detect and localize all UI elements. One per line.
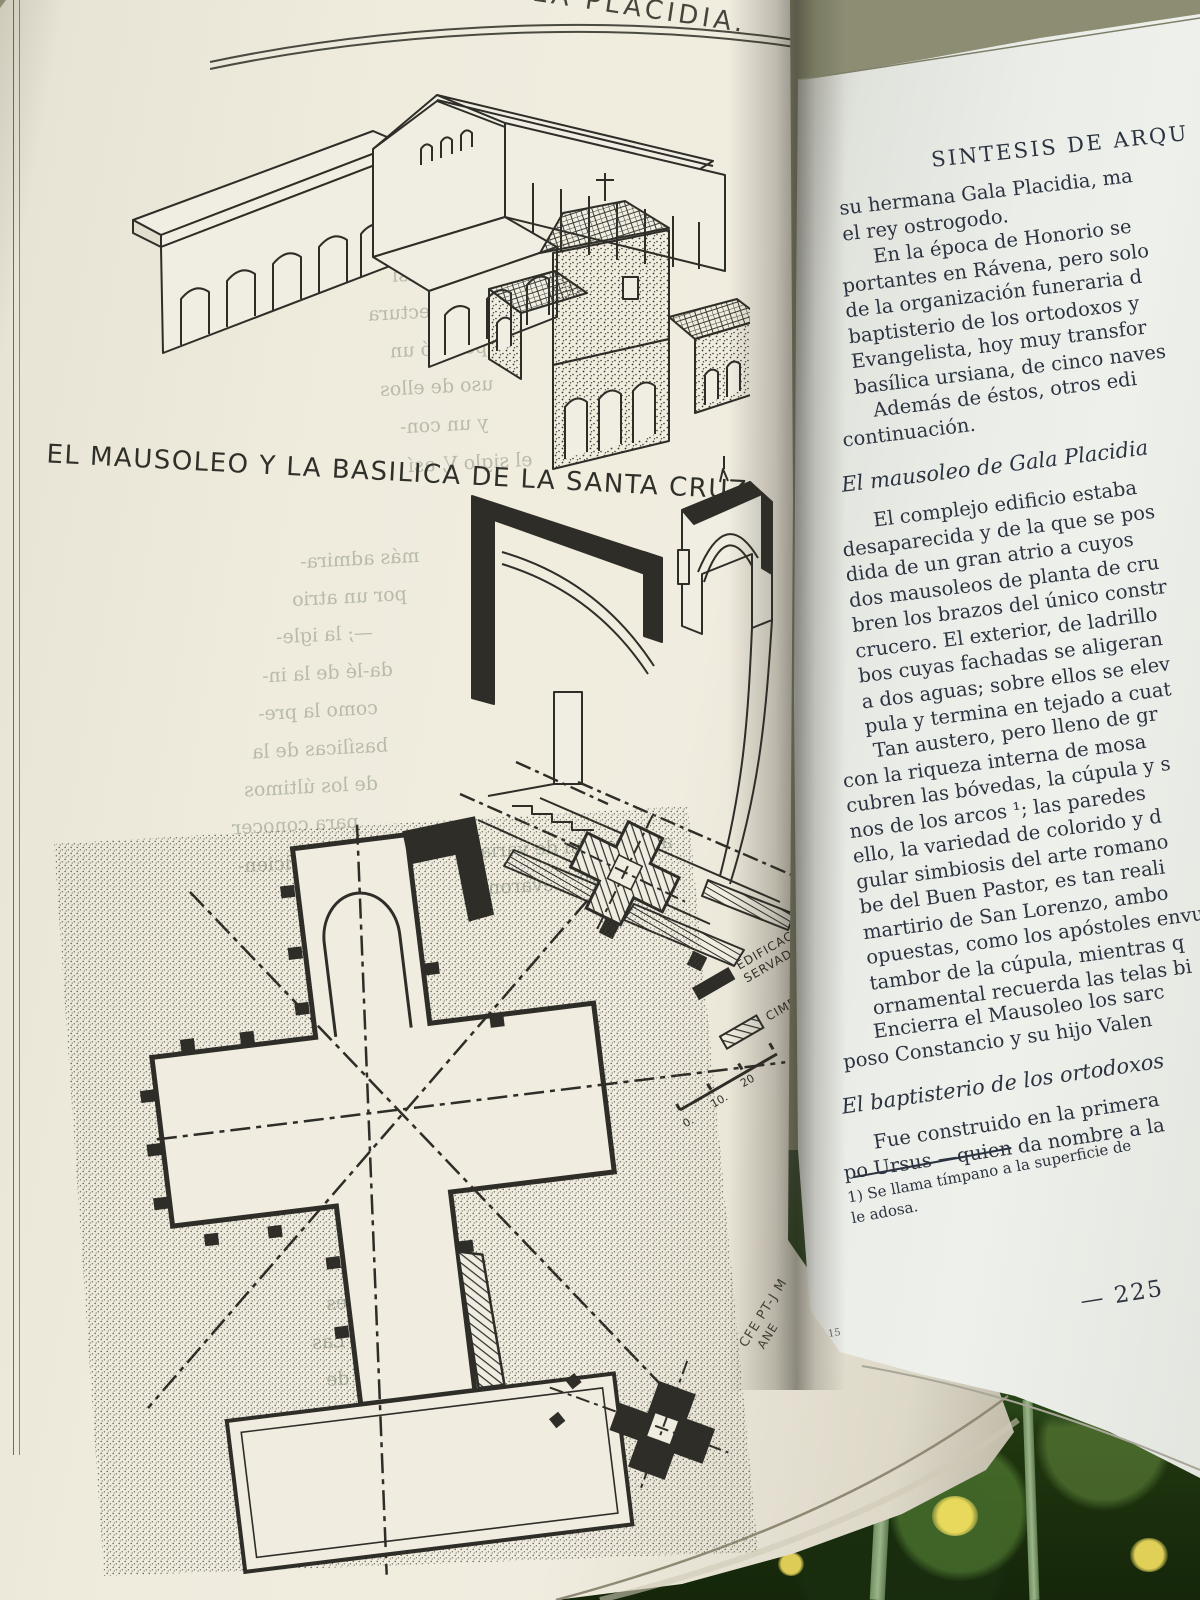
right-page: SINTESIS DE ARQUsu hermana Gala Placidia… [780,0,1200,1520]
showthrough-text: da-lé de la in- [262,659,394,688]
axonometric-drawing [85,55,750,485]
yellow-flower [1130,1538,1168,1572]
showthrough-text: como la pre- [258,697,379,725]
plan-note: CFE PT-J M ANE [737,1276,800,1358]
paragraph: El complejo edificio estabadesaparecida … [838,458,1200,740]
page-number: — 225 [1078,1276,1165,1315]
showthrough-text: basílicas de la [252,734,389,763]
right-page-text: SINTESIS DE ARQUsu hermana Gala Placidia… [838,148,1200,1187]
showthrough-text: —; la igle- [275,621,373,648]
page-frame-line [13,0,20,1455]
yellow-flower [932,1496,978,1536]
paragraph: Tan austero, pero lleno de grcon la riqu… [838,685,1200,1021]
showthrough-text: más admira- [300,545,421,573]
book-photo: { "palette": { "left_paper": "#eee9dc", … [0,0,1200,1600]
floor-plan-drawing: EDIFICACIONES SERVADAS CIMENTACIONES 0. … [40,780,800,1590]
showthrough-text: por un atrio [292,583,408,611]
